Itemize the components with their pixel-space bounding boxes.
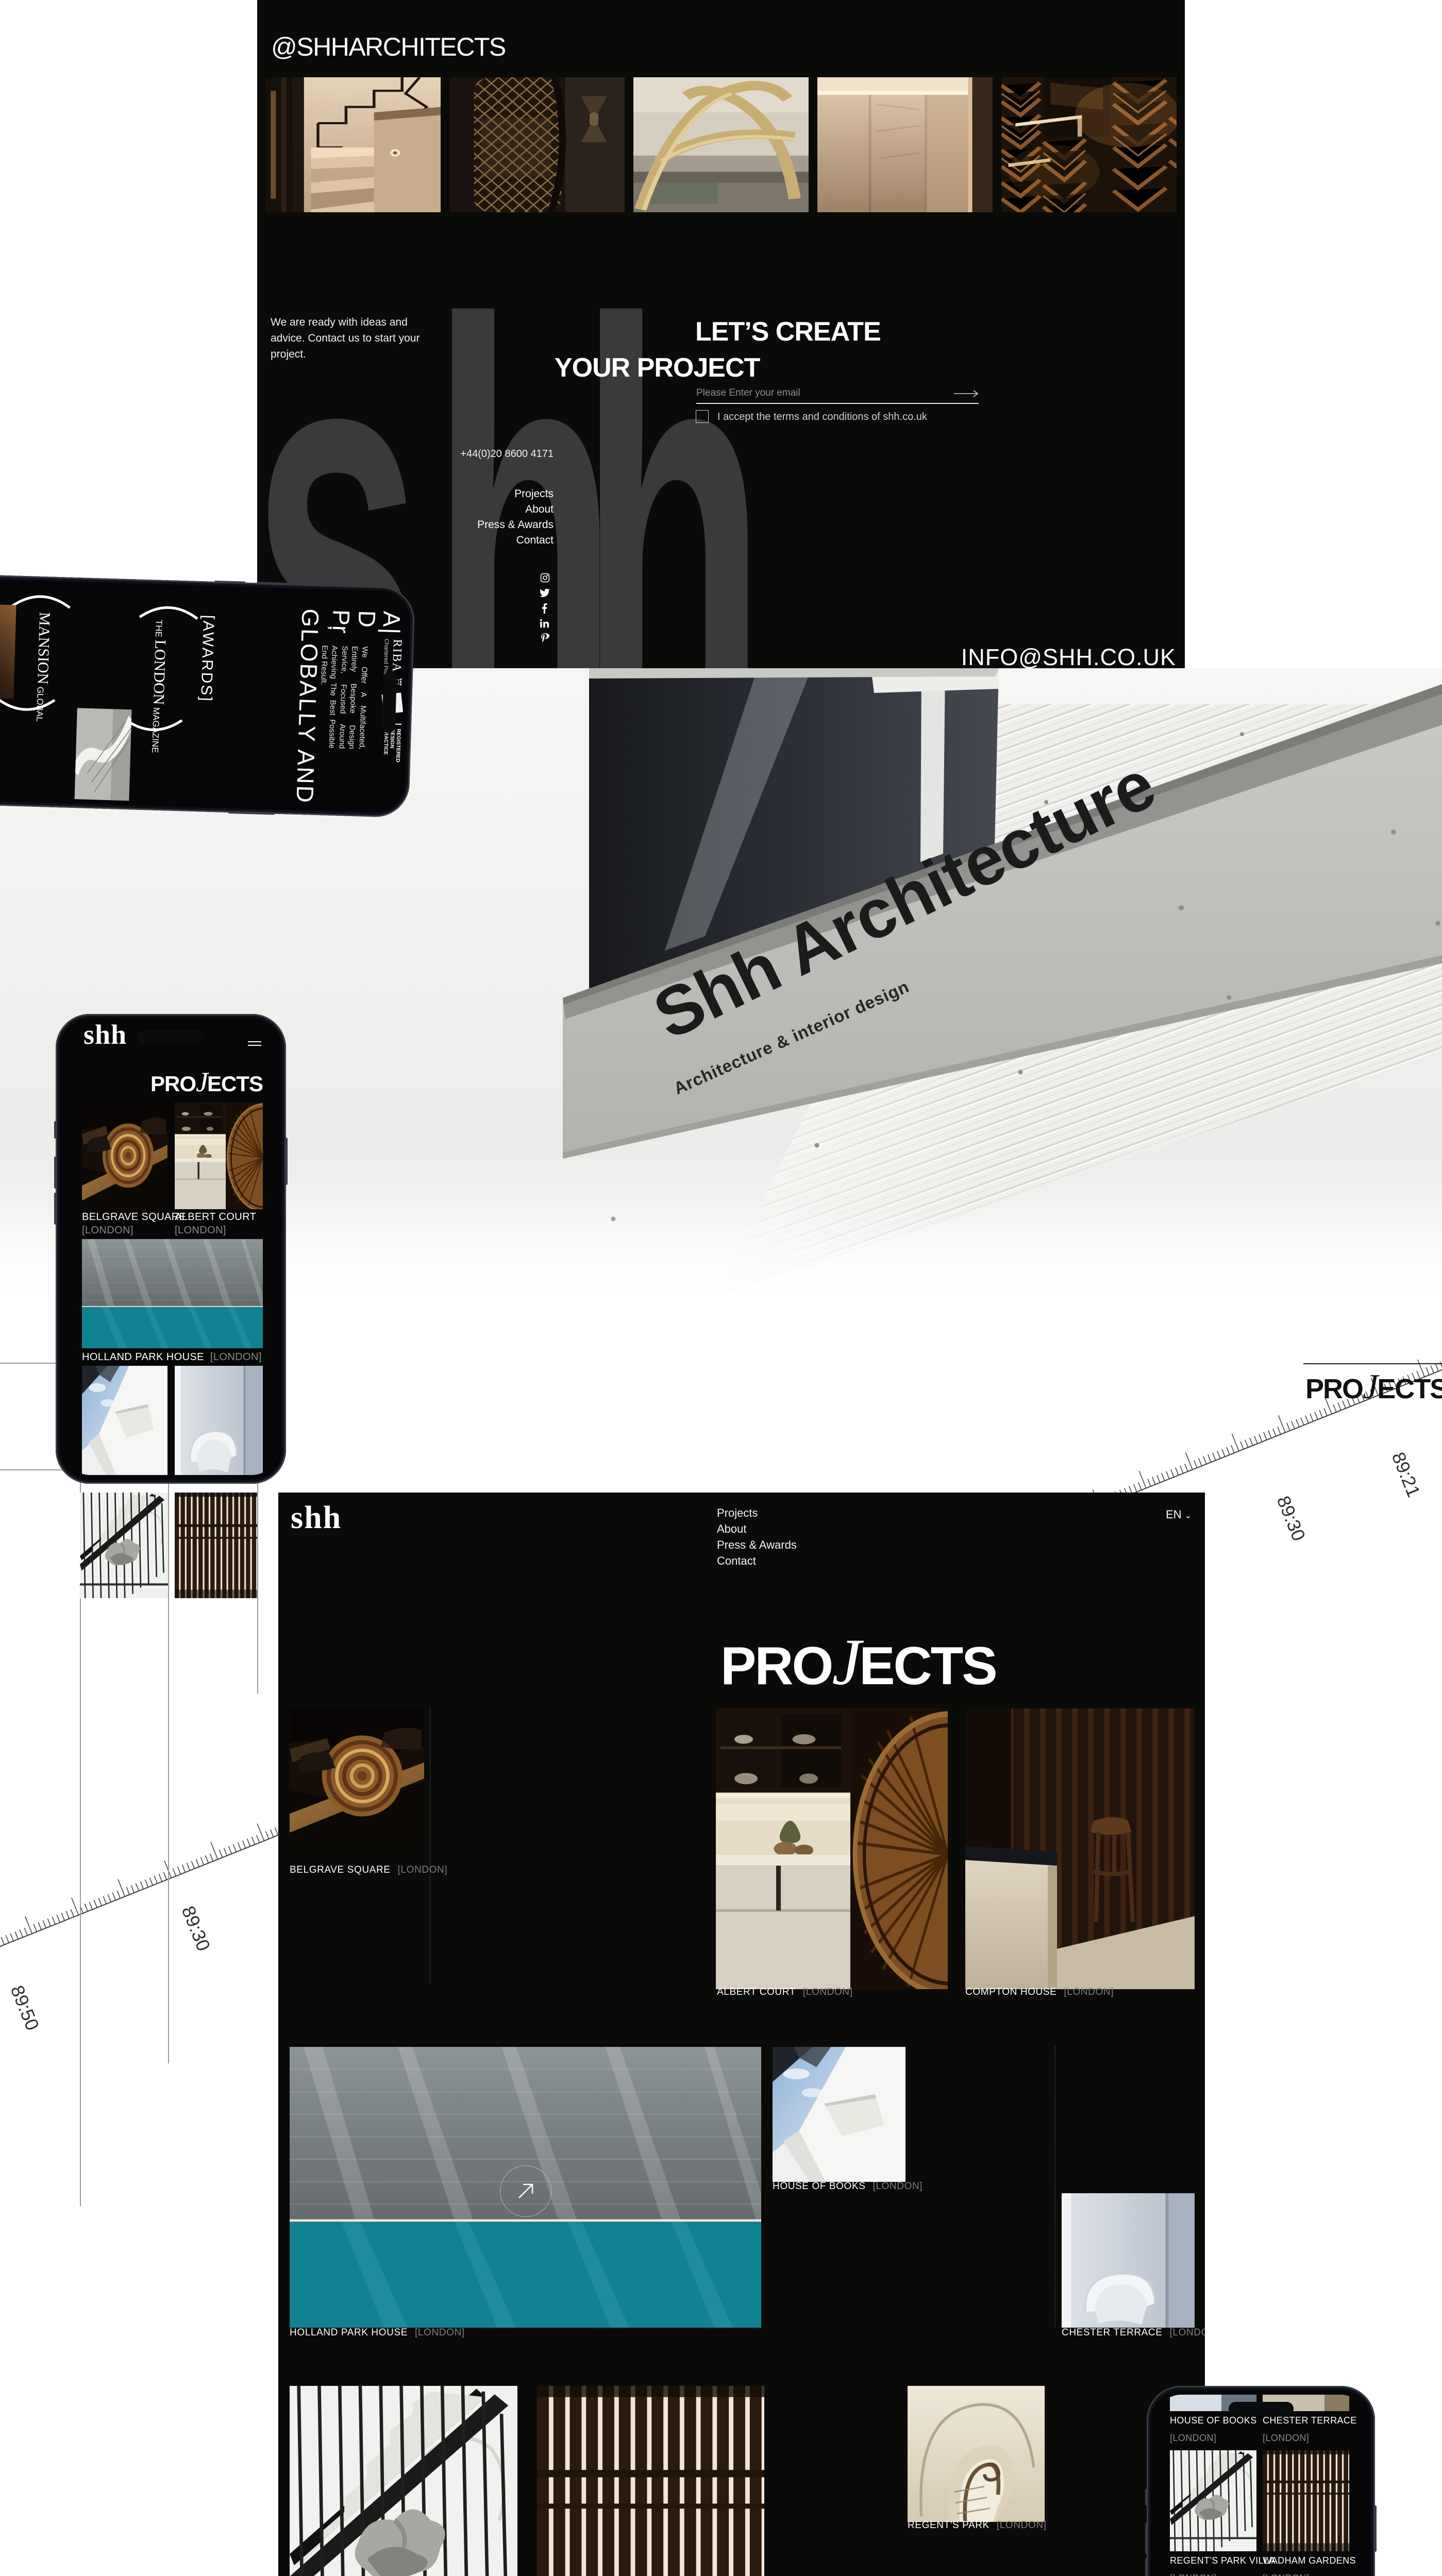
svg-text:89:50: 89:50 [7, 1982, 44, 2033]
svg-text:89:21: 89:21 [1388, 1449, 1425, 1500]
svg-text:89:30: 89:30 [178, 1903, 215, 1954]
svg-text:89:30: 89:30 [1273, 1493, 1310, 1544]
